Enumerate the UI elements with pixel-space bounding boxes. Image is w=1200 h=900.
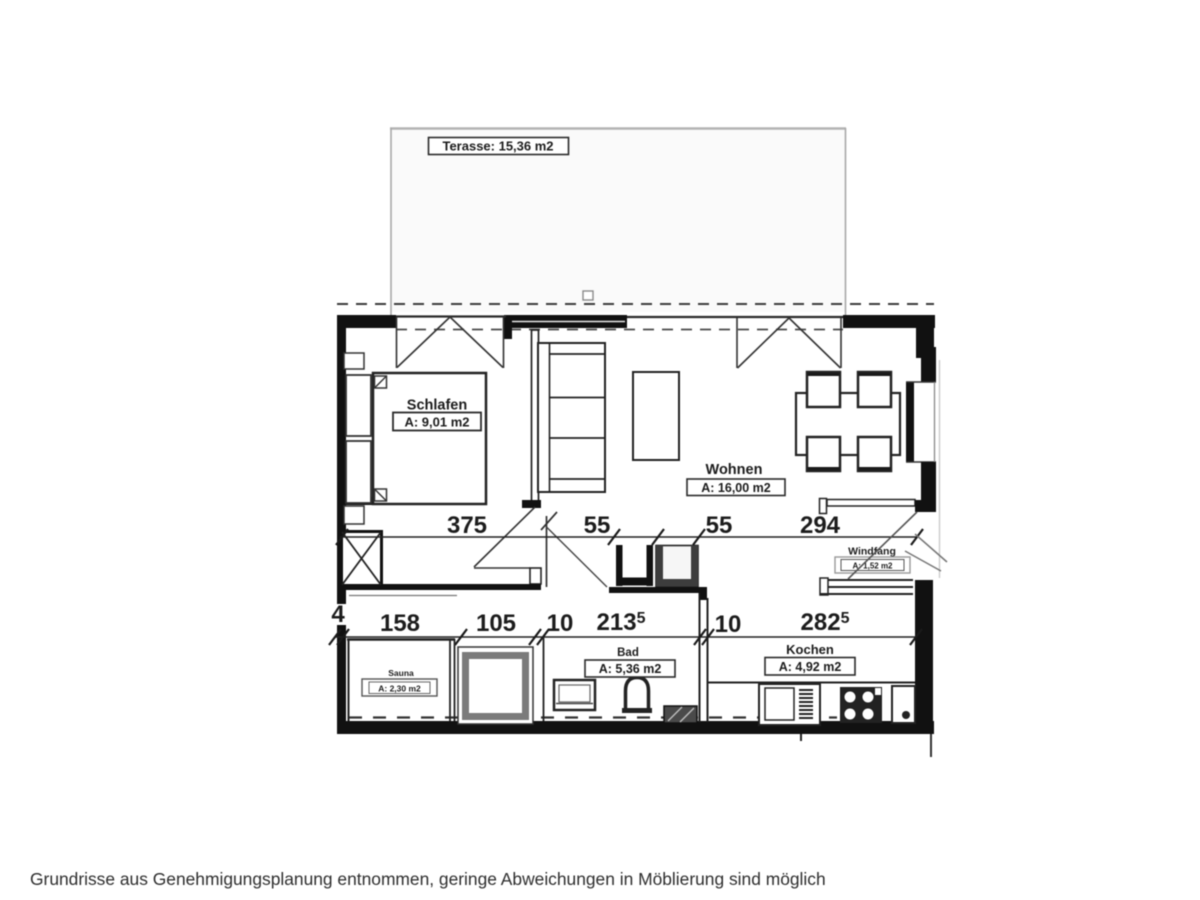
svg-text:55: 55 — [584, 512, 611, 539]
svg-text:10: 10 — [715, 611, 742, 638]
svg-text:A: 16,00 m2: A: 16,00 m2 — [701, 481, 771, 495]
svg-text:Schlafen: Schlafen — [407, 398, 467, 414]
svg-text:55: 55 — [706, 512, 733, 539]
svg-text:Kochen: Kochen — [786, 642, 834, 657]
svg-text:158: 158 — [380, 610, 420, 637]
svg-text:10: 10 — [547, 610, 574, 637]
svg-text:105: 105 — [476, 610, 516, 637]
svg-text:294: 294 — [800, 512, 841, 539]
svg-text:Sauna: Sauna — [388, 668, 414, 678]
svg-text:Grundrisse aus Genehmigungspla: Grundrisse aus Genehmigungsplanung entno… — [30, 869, 826, 889]
svg-text:A: 4,92 m2: A: 4,92 m2 — [779, 660, 842, 674]
svg-text:4: 4 — [331, 601, 345, 628]
svg-text:A: 9,01 m2: A: 9,01 m2 — [404, 415, 469, 430]
svg-text:A: 5,36 m2: A: 5,36 m2 — [599, 662, 662, 676]
svg-text:375: 375 — [447, 512, 487, 539]
svg-text:Bad: Bad — [617, 647, 639, 659]
svg-text:Wohnen: Wohnen — [706, 462, 763, 478]
svg-text:A: 2,30 m2: A: 2,30 m2 — [378, 684, 421, 694]
svg-text:Terasse: 15,36 m2: Terasse: 15,36 m2 — [442, 139, 553, 154]
